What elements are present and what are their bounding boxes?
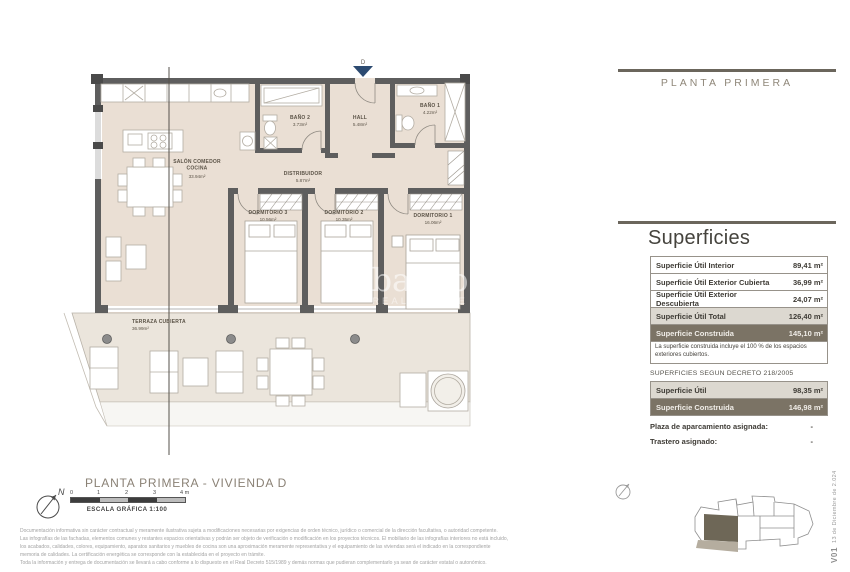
entrance-marker: D xyxy=(353,60,373,77)
legal-paragraph-1: Documentación informativa sin carácter c… xyxy=(20,527,592,559)
panel-mid-rule xyxy=(618,221,836,224)
table-note: La superficie construida incluye el 100 … xyxy=(651,342,827,364)
watermark: obacapa REAL ESTATE xyxy=(352,261,487,307)
table-row: Superficie Útil 98,35 m² xyxy=(651,382,827,399)
storage-label: Trastero asignado: xyxy=(650,437,811,446)
label-dorm2: DORMITORIO 2 xyxy=(325,210,364,216)
label-bano1: BAÑO 1 xyxy=(420,102,440,109)
scale-caption: ESCALA GRÁFICA 1:100 xyxy=(70,506,184,513)
table-row-construida: Superficie Construida 145,10 m² xyxy=(651,325,827,342)
table-row: Superficie Útil Exterior Descubierta 24,… xyxy=(651,291,827,308)
legal-paragraph-2: Toda la información y entrega de documen… xyxy=(20,559,592,567)
plan-caption: PLANTA PRIMERA - VIVIENDA D xyxy=(85,476,287,490)
scale-bar-segments xyxy=(70,497,186,503)
row-value: 36,99 m² xyxy=(777,278,827,287)
label-terraza: TERRAZA CUBIERTA xyxy=(132,319,186,325)
floorplan-drawing: D SALÓN COMEDOR COCINA 33.94m² BAÑO 2 3.… xyxy=(20,55,520,475)
north-label: N xyxy=(58,487,65,497)
label-salon-2: COCINA xyxy=(187,166,208,172)
version-tag: V01 13 de Diciembre de 2.024 xyxy=(830,487,839,563)
parking-value: - xyxy=(811,422,814,431)
label-hall: HALL xyxy=(353,115,367,121)
label-salon-1: SALÓN COMEDOR xyxy=(173,157,221,165)
key-plan xyxy=(690,486,822,566)
row-value: 24,07 m² xyxy=(777,295,827,304)
row-value: 146,98 m² xyxy=(777,403,827,412)
row-label: Superficie Útil Interior xyxy=(651,261,777,270)
row-label: Superficie Útil Exterior Cubierta xyxy=(651,278,777,287)
version-date: 13 de Diciembre de 2.024 xyxy=(832,470,838,543)
scale-tick-0: 0 xyxy=(70,490,73,496)
scale-tick-4: 4 m xyxy=(180,490,189,496)
panel-header: PLANTA PRIMERA xyxy=(618,77,836,89)
decree-table: Superficie Útil 98,35 m² Superficie Cons… xyxy=(650,381,828,416)
legal-line-2: Las infografías de las fachadas, element… xyxy=(20,535,592,543)
storage-value: - xyxy=(811,437,814,446)
row-value: 126,40 m² xyxy=(777,312,827,321)
plan-sheet: D SALÓN COMEDOR COCINA 33.94m² BAÑO 2 3.… xyxy=(0,0,850,572)
entrance-marker-triangle xyxy=(353,66,373,77)
area-salon: 33.94m² xyxy=(189,174,206,179)
watermark-tagline: REAL ESTATE xyxy=(372,296,468,307)
table-row: Superficie Útil Interior 89,41 m² xyxy=(651,257,827,274)
scale-tick-3: 3 xyxy=(153,490,156,496)
key-plan-highlight-terrace xyxy=(696,540,738,552)
row-label: Superficie Construida xyxy=(651,403,777,412)
row-label: Superficie Útil Exterior Descubierta xyxy=(651,290,777,308)
legal-line-1: Documentación informativa sin carácter c… xyxy=(20,527,592,535)
scale-ticks: 0 1 2 3 4 m xyxy=(70,490,200,497)
row-label: Superficie Útil xyxy=(651,386,777,395)
storage-row: Trastero asignado: - xyxy=(650,437,813,446)
row-label: Superficie Construida xyxy=(651,329,777,338)
parking-row: Plaza de aparcamiento asignada: - xyxy=(650,422,813,431)
entrance-marker-letter: D xyxy=(361,60,366,66)
label-distribuidor: DISTRIBUIDOR xyxy=(284,171,323,177)
superficies-title: Superficies xyxy=(648,227,750,250)
label-bano2: BAÑO 2 xyxy=(290,114,310,121)
label-dorm1: DORMITORIO 1 xyxy=(414,213,453,219)
table-row-total: Superficie Útil Total 126,40 m² xyxy=(651,308,827,325)
area-distribuidor: 5.87m² xyxy=(296,178,311,183)
area-dorm1: 16.06m² xyxy=(425,220,442,225)
label-dorm3: DORMITORIO 3 xyxy=(249,210,288,216)
area-dorm3: 10.56m² xyxy=(260,217,277,222)
area-dorm2: 10.35m² xyxy=(336,217,353,222)
area-bano1: 4.22m² xyxy=(423,110,438,115)
row-value: 89,41 m² xyxy=(777,261,827,270)
watermark-word: obacapa xyxy=(352,261,487,299)
area-hall: 5.48m² xyxy=(353,122,368,127)
table-row-construida: Superficie Construida 146,98 m² xyxy=(651,399,827,416)
area-bano2: 3.73m² xyxy=(293,122,308,127)
superficies-table: Superficie Útil Interior 89,41 m² Superf… xyxy=(650,256,828,364)
table-row: Superficie Útil Exterior Cubierta 36,99 … xyxy=(651,274,827,291)
row-label: Superficie Útil Total xyxy=(651,312,777,321)
legal-line-5: Toda la información y entrega de documen… xyxy=(20,559,592,567)
parking-label: Plaza de aparcamiento asignada: xyxy=(650,422,811,431)
legal-line-4: memoria de calidades. La certificación e… xyxy=(20,551,592,559)
scale-bar: 0 1 2 3 4 m ESCALA GRÁFICA 1:100 xyxy=(70,490,200,513)
legal-line-3: los acabados, calidades, colores, equipa… xyxy=(20,543,592,551)
scale-tick-1: 1 xyxy=(97,490,100,496)
north-compass-icon: N xyxy=(30,483,72,523)
scale-tick-2: 2 xyxy=(125,490,128,496)
keyplan-north-icon xyxy=(612,477,638,503)
area-terraza: 36.99m² xyxy=(132,326,149,331)
decree-title: SUPERFICIES SEGUN DECRETO 218/2005 xyxy=(650,370,793,377)
panel-top-rule xyxy=(618,69,836,72)
row-value: 98,35 m² xyxy=(777,386,827,395)
key-plan-highlight-unit xyxy=(704,514,738,542)
row-value: 145,10 m² xyxy=(777,329,827,338)
version-code: V01 xyxy=(830,547,839,563)
